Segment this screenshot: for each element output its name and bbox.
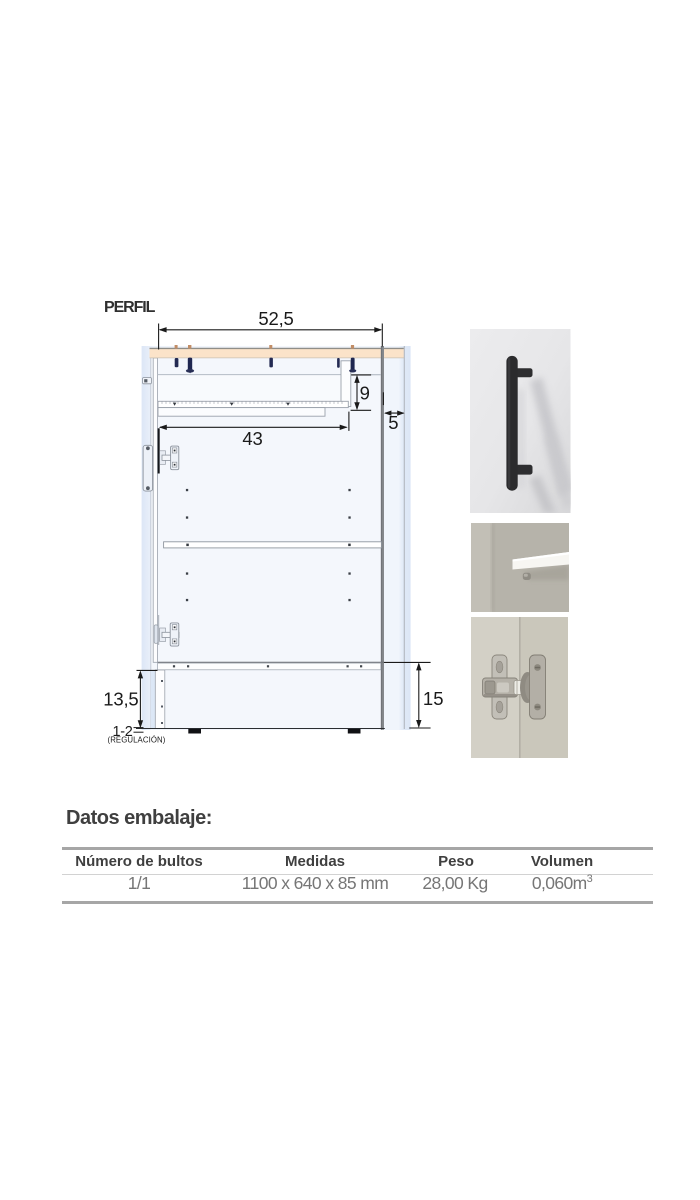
- svg-text:13,5: 13,5: [103, 689, 138, 710]
- svg-text:(REGULACIÓN): (REGULACIÓN): [108, 736, 166, 745]
- svg-text:52,5: 52,5: [258, 308, 293, 329]
- svg-text:43: 43: [242, 428, 262, 449]
- svg-text:5: 5: [388, 412, 398, 433]
- svg-text:15: 15: [423, 688, 444, 709]
- svg-text:9: 9: [360, 382, 370, 403]
